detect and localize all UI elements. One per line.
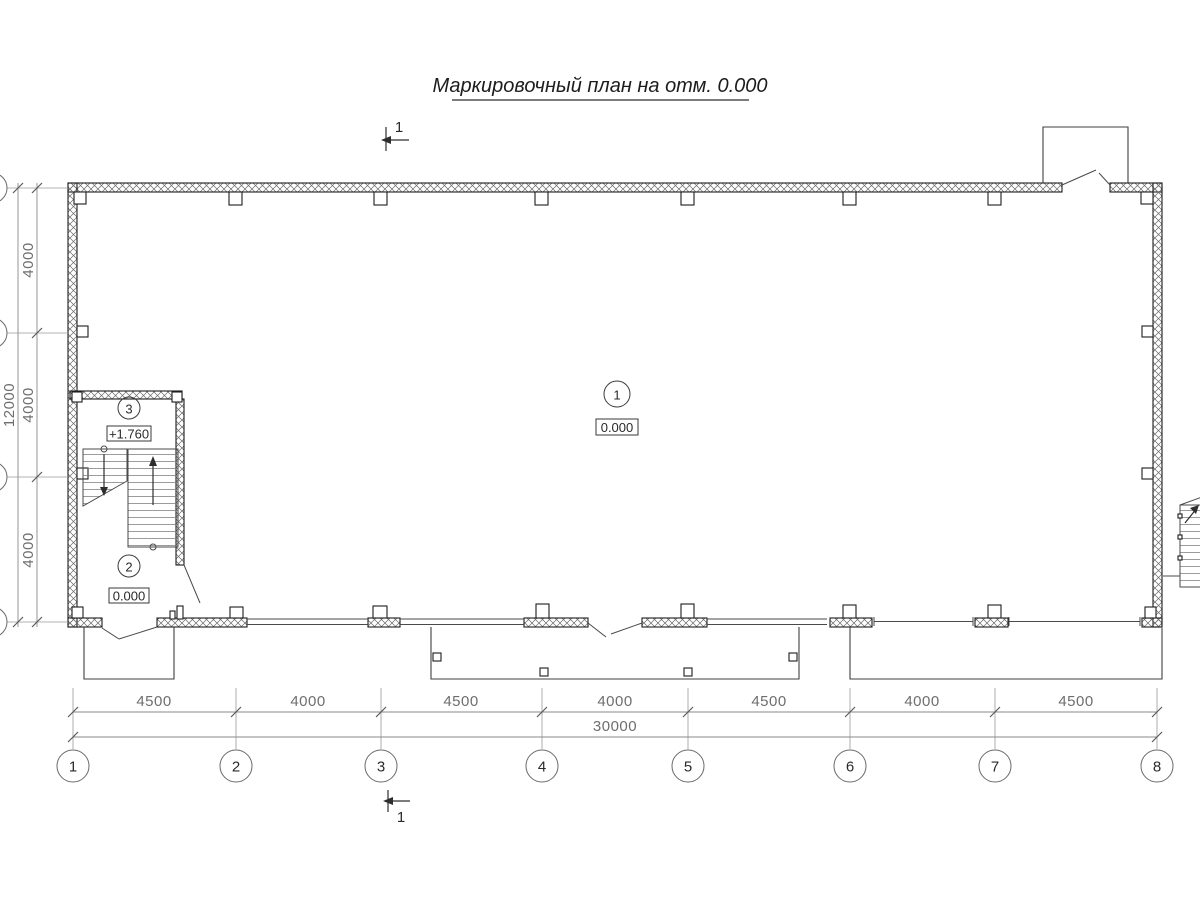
column [988, 192, 1001, 205]
window-band [400, 619, 524, 625]
elevation-value: 0.000 [601, 420, 634, 435]
dim-text: 4000 [597, 693, 632, 710]
stringer-node [1178, 514, 1182, 518]
columns [72, 192, 1156, 618]
column [77, 326, 88, 337]
elevation-value: 0.000 [113, 589, 146, 604]
entrance-door-left [102, 627, 157, 639]
dim-text: 4000 [290, 693, 325, 710]
dim-text: 4500 [136, 693, 171, 710]
wall-segment [642, 618, 707, 627]
column [373, 606, 387, 618]
stair-flight-down [83, 449, 127, 506]
stringer-node [1178, 556, 1182, 560]
entrance-porch-bottom-left [84, 627, 174, 679]
grid-label: 4 [538, 759, 546, 776]
dim-total-text: 12000 [1, 383, 18, 427]
row-grid-bubble [0, 462, 7, 492]
column [681, 192, 694, 205]
wall-segment [830, 618, 872, 627]
wall-segment [975, 618, 1008, 627]
grid-label: 7 [991, 759, 999, 776]
dim-text: 4500 [1058, 693, 1093, 710]
column-grid-bubbles: 1 2 3 4 5 6 7 8 [57, 750, 1173, 782]
wall-segment [68, 183, 1062, 192]
column [1142, 468, 1153, 479]
column [843, 192, 856, 205]
column [535, 192, 548, 205]
drawing-title: Маркировочный план на отм. 0.000 [432, 75, 767, 97]
dim-total-text: 30000 [593, 718, 637, 735]
column [1141, 192, 1153, 204]
row-grid-bubble [0, 173, 7, 203]
wall-end-block [72, 392, 82, 402]
stairwell [83, 446, 178, 550]
row-grid-bubble [0, 607, 7, 637]
room-label-hall: 1 0.000 [596, 381, 638, 435]
section-label: 1 [395, 119, 403, 136]
section-label: 1 [397, 809, 405, 826]
title-block: Маркировочный план на отм. 0.000 [432, 75, 767, 100]
column [1142, 326, 1153, 337]
dim-text: 4000 [904, 693, 939, 710]
column [230, 607, 243, 618]
room-number: 3 [125, 402, 132, 417]
left-dimensions: 4000 4000 4000 12000 [0, 173, 68, 637]
window-band [707, 619, 827, 625]
wall-segment [68, 618, 102, 627]
wall-segment [68, 183, 77, 627]
wall-segment [1153, 183, 1162, 627]
dim-text: 4000 [20, 387, 37, 422]
wall-segment [368, 618, 400, 627]
column [72, 607, 83, 618]
column [229, 192, 242, 205]
grid-label: 8 [1153, 759, 1161, 776]
elevation-value: +1.760 [109, 427, 149, 442]
exterior-stair-right [1163, 497, 1200, 587]
room-number: 1 [613, 388, 620, 403]
room-label-vestibule: 2 0.000 [109, 555, 149, 604]
dock-post [684, 668, 692, 676]
grid-label: 6 [846, 759, 854, 776]
door-jamb [177, 606, 183, 619]
gate-opening [874, 617, 973, 626]
section-mark-top: 1 [381, 119, 409, 151]
grid-label: 3 [377, 759, 385, 776]
double-door-top [1062, 170, 1110, 185]
grid-label: 5 [684, 759, 692, 776]
wall-segment [1142, 618, 1162, 627]
bottom-dimensions: 4500 4000 4500 4000 4500 4000 4500 30000… [57, 688, 1173, 782]
section-mark-bottom: 1 [383, 790, 410, 826]
double-door-middle [588, 623, 642, 637]
floor-plan-drawing: Маркировочный план на отм. 0.000 1 1 [0, 0, 1200, 900]
column [988, 605, 1001, 618]
column [74, 192, 86, 204]
doors [102, 170, 1110, 639]
row-grid-bubble [0, 318, 7, 348]
column [374, 192, 387, 205]
exterior-walls [68, 183, 1162, 627]
column [1145, 607, 1156, 618]
loading-dock-right [850, 627, 1162, 679]
wall-end-block [172, 392, 182, 402]
wall-segment [524, 618, 588, 627]
dim-text: 4500 [443, 693, 478, 710]
floor-plan-sheet: Маркировочный план на отм. 0.000 1 1 [0, 0, 1200, 900]
dim-text: 4000 [20, 242, 37, 277]
column [681, 604, 694, 618]
porches-docks [84, 127, 1162, 679]
dock-post [433, 653, 441, 661]
dim-text: 4500 [751, 693, 786, 710]
dock-post [540, 668, 548, 676]
grid-label: 2 [232, 759, 240, 776]
dock-post [789, 653, 797, 661]
column [536, 604, 549, 618]
loading-dock-middle [431, 627, 799, 679]
column [843, 605, 856, 618]
gate-opening [1009, 617, 1140, 626]
dim-text: 4000 [20, 532, 37, 567]
door-jamb [170, 611, 175, 619]
stair-top-edge [1180, 497, 1200, 505]
grid-label: 1 [69, 759, 77, 776]
stair-door-leaf [184, 565, 200, 603]
room-number: 2 [125, 560, 132, 575]
stringer-node [1178, 535, 1182, 539]
room-label-stair-landing: 3 +1.760 [107, 397, 151, 442]
window-band [247, 619, 368, 625]
